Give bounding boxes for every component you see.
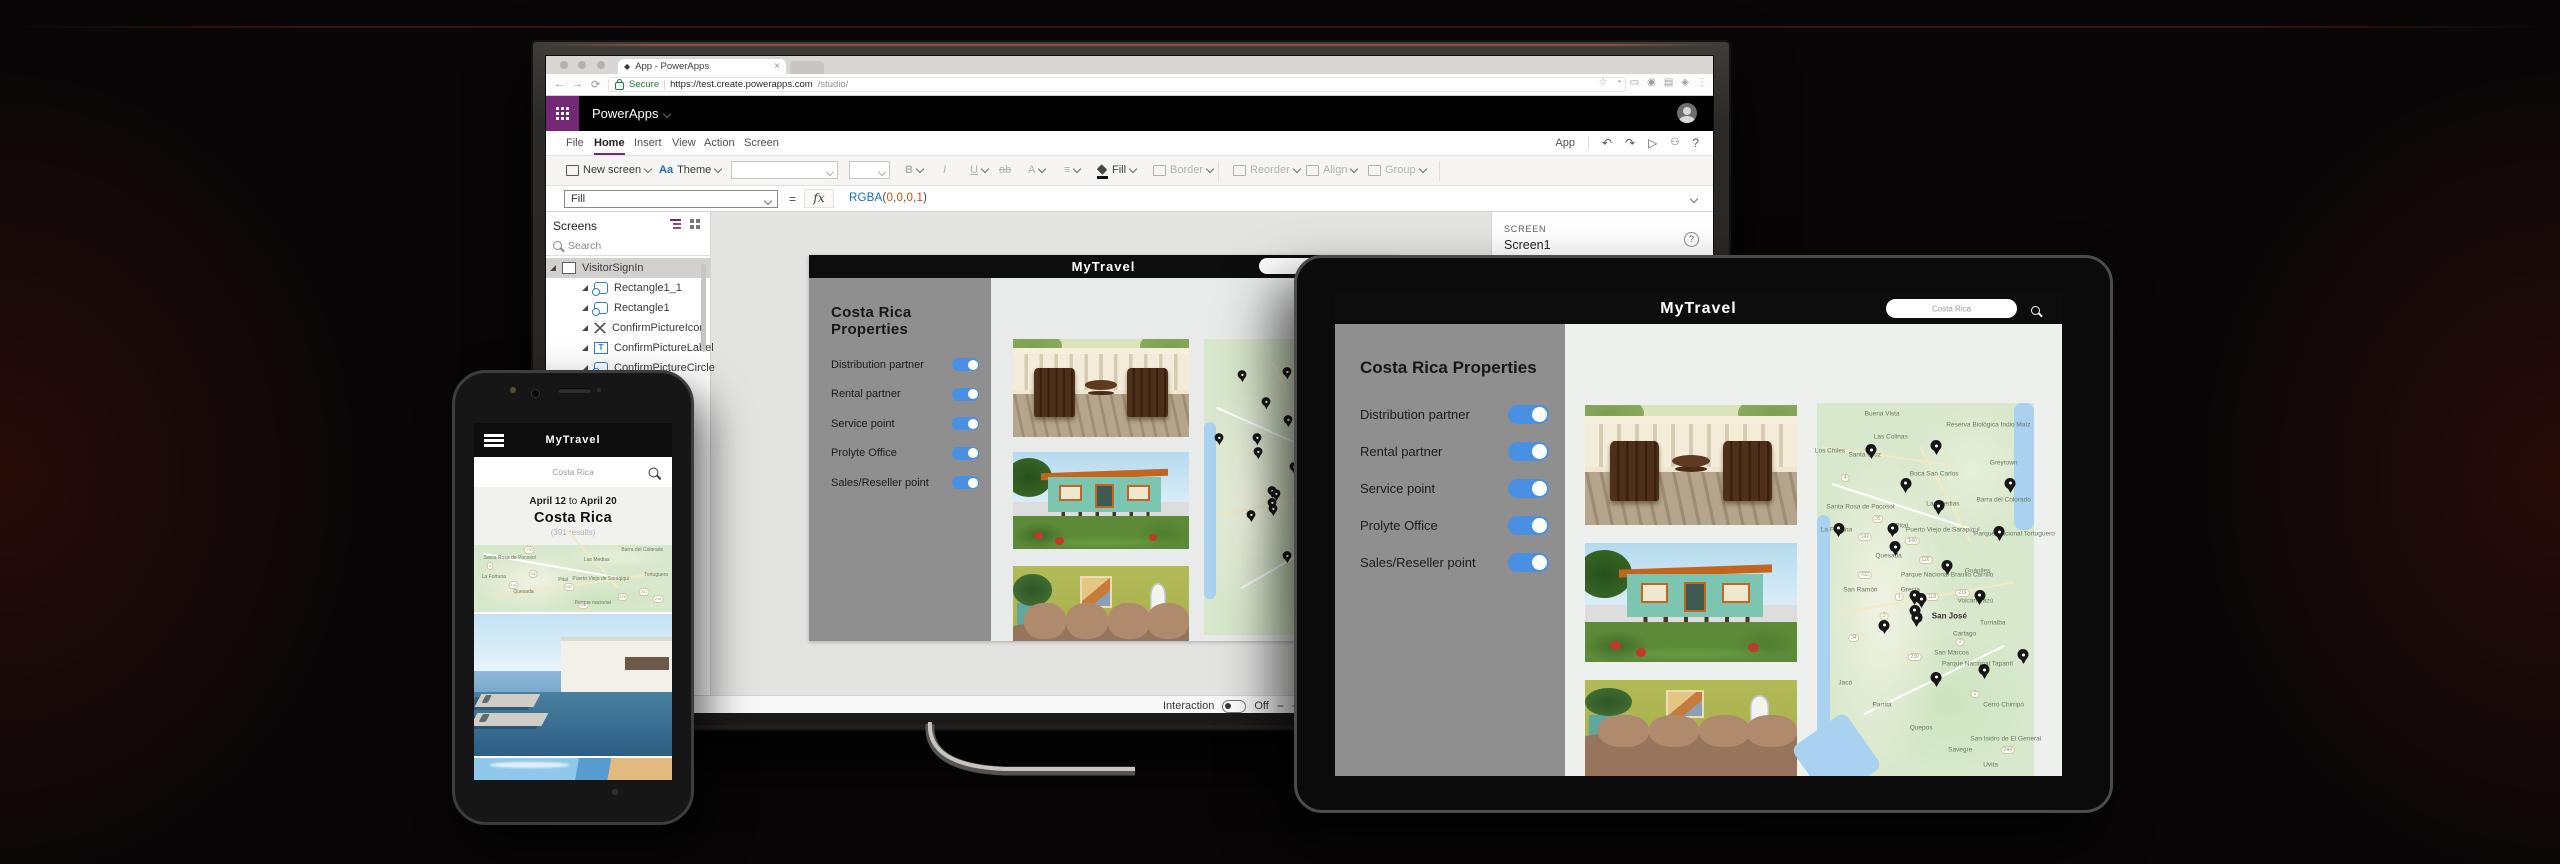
chevron-down-icon[interactable] xyxy=(663,110,671,118)
phone-home-dot xyxy=(612,789,618,795)
window-minimize-button[interactable] xyxy=(578,61,586,69)
map-place-label: Santa Rosa de Pocosol xyxy=(483,555,535,561)
map-pin-icon xyxy=(1942,560,1953,571)
secure-label: Secure xyxy=(629,79,659,90)
road-shield: 793 xyxy=(524,546,535,554)
powerapps-top-bar: PowerApps xyxy=(546,96,1713,131)
map-pin-icon xyxy=(1974,590,1985,601)
divider xyxy=(1588,136,1589,150)
background-accent-line xyxy=(0,26,2560,28)
destination-title: Costa Rica xyxy=(474,510,672,526)
map-place-label: Buena Vista xyxy=(1865,411,1900,418)
date-to: April 20 xyxy=(580,496,617,507)
expander-icon[interactable] xyxy=(582,305,588,311)
gallery-photo-balcony[interactable] xyxy=(1585,405,1797,525)
filter-label: Distribution partner xyxy=(1360,407,1508,422)
menu-bar: FileHomeInsertViewActionScreen App ↶ ↷ ▷… xyxy=(546,131,1713,156)
sidebar-heading: Costa Rica Properties xyxy=(1360,358,1565,378)
phone-camera-icon xyxy=(531,389,540,398)
phone-screen: MyTravel Costa Rica April 12 to April 20… xyxy=(474,423,672,780)
sidebar-heading: Costa Rica Properties xyxy=(831,304,991,338)
road-shield: 248 xyxy=(653,595,664,603)
road-shield: 140 xyxy=(1905,537,1919,545)
filter-row: Rental partner xyxy=(1360,433,1549,470)
bold-button[interactable]: B xyxy=(905,164,923,176)
date-joiner: to xyxy=(566,496,580,507)
water-area xyxy=(1204,422,1216,600)
map-pin-icon xyxy=(1269,504,1278,513)
filter-row: Service point xyxy=(1360,470,1549,507)
menu-item[interactable]: View xyxy=(672,137,696,153)
map-pin-icon xyxy=(1282,368,1291,377)
font-color-button[interactable]: A xyxy=(1028,164,1045,176)
map-pin-icon xyxy=(1282,551,1291,560)
tree-item[interactable]: Rectangle1 xyxy=(546,298,711,318)
filter-label: Sales/Reseller point xyxy=(831,477,952,489)
gallery-photo-interior[interactable] xyxy=(1013,566,1189,641)
toggle-switch[interactable] xyxy=(952,417,979,430)
search-input[interactable]: Costa Rica xyxy=(1886,299,2017,318)
url-domain: https://test.create.powerapps.com xyxy=(670,79,813,90)
font-size-select[interactable] xyxy=(849,161,890,179)
filter-row: Distribution partner xyxy=(1360,396,1549,433)
map-pin-icon xyxy=(1979,664,1990,675)
map-pin-icon xyxy=(1931,440,1942,451)
filter-label: Sales/Reseller point xyxy=(1360,555,1508,570)
filter-label: Rental partner xyxy=(1360,444,1508,459)
map-pin-icon xyxy=(2005,478,2016,489)
menu-item[interactable]: Home xyxy=(594,137,625,155)
road-shield: 2 xyxy=(1956,638,1965,646)
filter-label: Service point xyxy=(1360,481,1508,496)
screens-search-input[interactable]: Search xyxy=(546,236,711,256)
water-area xyxy=(1791,711,1883,776)
gallery-photo-villa-pool[interactable] xyxy=(474,614,672,756)
control-type-icon xyxy=(562,262,576,274)
map-place-label: Santa Rosa de Pocosol xyxy=(1826,504,1894,511)
monitor-stand xyxy=(890,722,1150,792)
align-text-button[interactable]: ≡ xyxy=(1064,164,1080,176)
border-icon xyxy=(1153,165,1166,176)
search-icon[interactable] xyxy=(2031,302,2040,320)
map-place-label: Turrialba xyxy=(1980,620,2005,627)
app-launcher-icon[interactable] xyxy=(546,96,579,131)
search-icon xyxy=(553,241,562,250)
map-place-label: Barra del Colorado xyxy=(621,547,663,553)
control-type-icon xyxy=(594,302,608,314)
map-pin-icon xyxy=(1911,612,1922,623)
filter-row: Service point xyxy=(831,409,979,439)
app-header: MyTravel Costa Rica xyxy=(1335,293,2062,324)
road-shield: 126 xyxy=(1918,556,1932,564)
road-shield: 118 xyxy=(1925,593,1939,601)
formula-expand-icon[interactable] xyxy=(1690,195,1698,203)
font-family-select[interactable] xyxy=(731,161,838,179)
tree-item[interactable]: VisitorSignIn xyxy=(546,258,711,278)
tab-close-icon[interactable]: × xyxy=(774,61,780,72)
extension-icon[interactable]: ▤ xyxy=(1664,78,1673,88)
map-pin-icon xyxy=(1284,415,1293,424)
interaction-label: Interaction xyxy=(1163,700,1214,712)
scrollbar[interactable] xyxy=(701,264,706,352)
expander-icon[interactable] xyxy=(582,325,588,331)
road-shield: 35 xyxy=(1872,515,1884,523)
app-title: MyTravel xyxy=(474,434,672,446)
map-place-label: Barra del Colorado xyxy=(1976,496,2031,503)
map-widget[interactable]: 793435141140126229247248 Santa Rosa de P… xyxy=(474,545,672,612)
filter-label: Prolyte Office xyxy=(1360,518,1508,533)
filters-sidebar: Costa Rica Properties Distribution partn… xyxy=(1335,324,1565,776)
thumbnail-view-icon[interactable] xyxy=(690,219,700,229)
app-mode-label[interactable]: App xyxy=(1555,137,1575,149)
fill-button[interactable]: Fill xyxy=(1097,164,1136,176)
map-place-label: San Marcos xyxy=(1934,649,1969,656)
filter-label: Distribution partner xyxy=(831,359,952,371)
help-icon[interactable]: ? xyxy=(1692,137,1699,149)
tree-view-icon[interactable] xyxy=(670,219,681,229)
new-screen-icon xyxy=(566,165,579,176)
share-person-icon[interactable]: ⚇ xyxy=(1670,138,1679,148)
map-pin-icon xyxy=(1272,489,1281,498)
map-pin-icon xyxy=(1900,478,1911,489)
map-place-label: Tortuguero xyxy=(644,572,668,578)
padlock-icon xyxy=(615,82,624,90)
scene: ◆ App - PowerApps × ← → ⟳ Secure https:/… xyxy=(0,0,2560,864)
interaction-toggle[interactable] xyxy=(1222,700,1246,713)
filter-row: Prolyte Office xyxy=(1360,507,1549,544)
property-select[interactable]: Fill xyxy=(564,190,778,208)
equals-sign: = xyxy=(789,192,796,206)
help-circle-icon[interactable]: ? xyxy=(1684,232,1699,247)
map-place-label: Quesada xyxy=(513,589,533,595)
screens-panel-title: Screens xyxy=(553,219,597,233)
road-shield: 219 xyxy=(1955,589,1969,597)
map-place-label: Parque Nacional Tortuguero xyxy=(1974,530,2055,537)
extension-icon[interactable]: ◔ xyxy=(1616,78,1622,88)
search-placeholder: Costa Rica xyxy=(474,467,672,477)
map-widget[interactable]: 43514114012670211182193273422392244 Buen… xyxy=(1817,403,2034,776)
toggle-switch[interactable] xyxy=(1508,516,1549,535)
group-button[interactable]: Group xyxy=(1368,164,1426,176)
road-shield: 35 xyxy=(529,570,537,578)
map-place-label: Pital xyxy=(558,577,568,583)
browser-tab[interactable]: ◆ App - PowerApps × xyxy=(618,59,786,74)
tab-title: App - PowerApps xyxy=(635,61,769,72)
map-place-label: Reserva Biológica Indio Maíz xyxy=(1946,422,2030,429)
toggle-switch[interactable] xyxy=(1508,479,1549,498)
map-pin-icon xyxy=(1237,371,1246,380)
strikethrough-button[interactable]: ab xyxy=(999,164,1011,176)
map-pin-icon xyxy=(1833,523,1844,534)
road-shield: 140 xyxy=(564,583,575,591)
app-header: MyTravel xyxy=(474,423,672,457)
toggle-switch[interactable] xyxy=(952,447,979,460)
map-place-label: San Ramón xyxy=(1843,586,1877,593)
filter-row: Sales/Reseller point xyxy=(1360,544,1549,581)
road-shield: 702 xyxy=(1858,571,1872,579)
url-separator xyxy=(664,80,665,90)
expander-icon[interactable] xyxy=(582,285,588,291)
map-place-label: Puerto Viejo de Sarapiquí xyxy=(1906,526,1980,533)
zoom-out-button[interactable]: − xyxy=(1277,699,1284,713)
screens-tree: VisitorSignIn Rectangle1_1 xyxy=(546,258,711,378)
control-type-icon: T xyxy=(594,342,608,354)
date-from: April 12 xyxy=(529,496,566,507)
map-place-label: Guápiles xyxy=(1965,567,1991,574)
gallery-photo-balcony[interactable] xyxy=(1013,339,1189,437)
map-pin-icon xyxy=(1246,510,1255,519)
tablet-device: MyTravel Costa Rica Costa Rica Propertie… xyxy=(1294,255,2113,813)
tree-item[interactable]: T ConfirmPictureLabel xyxy=(546,338,711,358)
divider xyxy=(1439,161,1440,181)
browser-tab-strip: ◆ App - PowerApps × xyxy=(546,56,1713,74)
map-place-label: Boca San Carlos xyxy=(1910,470,1959,477)
expander-icon[interactable] xyxy=(550,265,556,271)
redo-icon[interactable]: ↷ xyxy=(1625,137,1635,149)
filter-label: Service point xyxy=(831,418,952,430)
group-icon xyxy=(1368,165,1381,176)
map-pin-icon xyxy=(1252,433,1261,442)
tree-item[interactable]: ConfirmPictureIcon xyxy=(546,318,711,338)
map-place-label: San José xyxy=(1932,611,1967,620)
map-place-label: Jacó xyxy=(1838,679,1852,686)
tablet-screen: MyTravel Costa Rica Costa Rica Propertie… xyxy=(1335,293,2062,776)
map-pin-icon xyxy=(2018,649,2029,660)
map-place-label: Savegre xyxy=(1948,746,1972,753)
road-shield: 4 xyxy=(1841,474,1850,482)
formula-input[interactable]: RGBA(0,0,0,1) xyxy=(849,192,927,204)
phone-sensor-dot xyxy=(597,388,601,392)
map-place-label: San Isidro de El General xyxy=(1970,735,2041,742)
undo-icon[interactable]: ↶ xyxy=(1602,137,1612,149)
preview-play-icon[interactable]: ▷ xyxy=(1648,137,1657,149)
forward-icon[interactable]: → xyxy=(572,78,583,90)
toggle-switch[interactable] xyxy=(1508,405,1549,424)
expander-icon[interactable] xyxy=(582,345,588,351)
map-place-label: Santa Cruz xyxy=(1848,452,1881,459)
phone-device: MyTravel Costa Rica April 12 to April 20… xyxy=(452,370,694,825)
phone-speaker xyxy=(558,388,591,393)
map-pin-icon xyxy=(1933,500,1944,511)
map-pin-icon xyxy=(1890,541,1901,552)
gallery-photo-beach[interactable] xyxy=(474,758,672,780)
fx-icon: fx xyxy=(804,189,834,208)
filter-row: Distribution partner xyxy=(831,350,979,380)
road-shield: 141 xyxy=(1858,533,1872,541)
map-pin-icon xyxy=(1261,397,1270,406)
filter-label: Rental partner xyxy=(831,388,952,400)
toggle-switch[interactable] xyxy=(952,476,979,489)
reorder-button[interactable]: Reorder xyxy=(1233,164,1300,176)
toggle-switch[interactable] xyxy=(952,388,979,401)
map-pin-icon xyxy=(1887,523,1898,534)
menu-item[interactable]: File xyxy=(566,137,584,153)
search-input[interactable]: Costa Rica xyxy=(474,457,672,487)
gallery-photo-interior[interactable] xyxy=(1585,680,1797,776)
align-icon xyxy=(1306,165,1319,176)
toggle-switch[interactable] xyxy=(952,358,979,371)
browser-menu-icon[interactable]: ⋮ xyxy=(1697,78,1707,88)
map-place-label: Cartago xyxy=(1953,631,1976,638)
interaction-state: Off xyxy=(1254,700,1268,712)
window-zoom-button[interactable] xyxy=(597,61,605,69)
road-shield: 3 xyxy=(1880,612,1889,620)
align-button[interactable]: Align xyxy=(1306,164,1357,176)
road-shield: 1 xyxy=(1895,593,1904,601)
filter-row: Sales/Reseller point xyxy=(831,468,979,498)
map-pin-icon xyxy=(1215,433,1224,442)
gallery-photo-beach-house[interactable] xyxy=(1013,452,1189,549)
control-type-icon xyxy=(594,323,606,333)
panel-kicker: SCREEN xyxy=(1504,224,1546,234)
map-place-label: Puerto Viejo de Saraqiqui xyxy=(572,576,629,582)
extension-icon[interactable]: ◈ xyxy=(1681,78,1689,88)
map-pin-icon xyxy=(1866,444,1877,455)
reorder-icon xyxy=(1233,165,1246,176)
extension-icon[interactable]: ▭ xyxy=(1630,78,1639,88)
map-pin-icon xyxy=(1879,620,1890,631)
menu-item[interactable]: Action xyxy=(704,137,735,153)
ribbon-toolbar: New screen Aa Theme B I U ab A ≡ Fill xyxy=(546,156,1713,186)
phone-sensor-dot xyxy=(510,387,516,393)
map-place-label: Los Chiles xyxy=(1815,448,1845,455)
road-shield: 34 xyxy=(1848,634,1860,642)
gallery-photo-beach-house[interactable] xyxy=(1585,543,1797,662)
tree-item[interactable]: Rectangle1_1 xyxy=(546,278,711,298)
map-place-label: Parque Nacional Tapantí xyxy=(1942,661,2013,668)
road-shield: 229 xyxy=(617,593,628,601)
address-bar[interactable]: Secure https://test.create.powerapps.com… xyxy=(608,77,1626,92)
window-close-button[interactable] xyxy=(560,61,568,69)
powerapps-brand[interactable]: PowerApps xyxy=(592,106,658,121)
menu-item[interactable]: Screen xyxy=(744,137,779,153)
map-place-label: Parrita xyxy=(1873,702,1892,709)
map-pin-icon xyxy=(1254,447,1263,456)
control-type-icon xyxy=(594,282,608,294)
formula-bar: Fill = fx RGBA(0,0,0,1) xyxy=(546,186,1713,212)
url-path: /studio/ xyxy=(818,79,849,90)
refresh-icon[interactable]: ⟳ xyxy=(591,78,600,91)
road-shield: 239 xyxy=(1907,653,1921,661)
map-pin-icon xyxy=(1994,526,2005,537)
map-place-label: Quepos xyxy=(1910,724,1933,731)
map-place-label: Cerro Chirripó xyxy=(1983,702,2024,709)
map-place-label: La Fortuna xyxy=(482,574,506,580)
filter-row: Rental partner xyxy=(831,380,979,410)
road-shield: 247 xyxy=(639,588,650,596)
menu-item[interactable]: Insert xyxy=(634,137,662,153)
browser-toolbar: ← → ⟳ Secure https://test.create.powerap… xyxy=(546,74,1713,96)
search-icon[interactable] xyxy=(649,468,659,478)
extension-icon[interactable]: ◉ xyxy=(1647,78,1656,88)
theme-button[interactable]: Aa Theme xyxy=(659,164,721,176)
map-place-label: Las Medias xyxy=(584,557,610,563)
map-place-label: Greytown xyxy=(1990,459,2018,466)
fill-bucket-icon xyxy=(1097,165,1108,176)
map-pin-icon xyxy=(1931,672,1942,683)
road-shield: 2 xyxy=(1971,690,1980,698)
italic-button[interactable]: I xyxy=(943,164,946,176)
tab-favicon-icon: ◆ xyxy=(624,63,630,71)
filter-label: Prolyte Office xyxy=(831,447,952,459)
results-area: 43514114012670211182193273422392244 Buen… xyxy=(1565,324,2062,776)
road-shield: 244 xyxy=(2001,746,2015,754)
map-place-label: Las Colinas xyxy=(1874,433,1908,440)
bookmark-star-icon[interactable]: ☆ xyxy=(1599,78,1608,88)
theme-icon: Aa xyxy=(659,164,673,176)
map-place-label: Parque nacional xyxy=(575,600,611,606)
toggle-switch[interactable] xyxy=(1508,553,1549,572)
back-icon[interactable]: ← xyxy=(554,78,565,90)
selected-screen-name[interactable]: Screen1 xyxy=(1504,238,1551,252)
water-area xyxy=(1817,515,1830,746)
border-button[interactable]: Border xyxy=(1153,164,1213,176)
map-pin-icon xyxy=(1916,593,1927,604)
new-screen-button[interactable]: New screen xyxy=(566,164,651,176)
avatar[interactable] xyxy=(1677,103,1697,123)
road-shield: 4 xyxy=(487,562,493,570)
underline-button[interactable]: U xyxy=(970,164,988,176)
toggle-switch[interactable] xyxy=(1508,442,1549,461)
divider xyxy=(1218,161,1219,181)
search-placeholder: Costa Rica xyxy=(1886,304,2017,313)
filter-row: Prolyte Office xyxy=(831,439,979,469)
map-place-label: Uvita xyxy=(1983,761,1998,768)
new-tab-button[interactable] xyxy=(790,61,824,74)
filters-sidebar: Costa Rica Properties Distribution partn… xyxy=(809,278,991,641)
